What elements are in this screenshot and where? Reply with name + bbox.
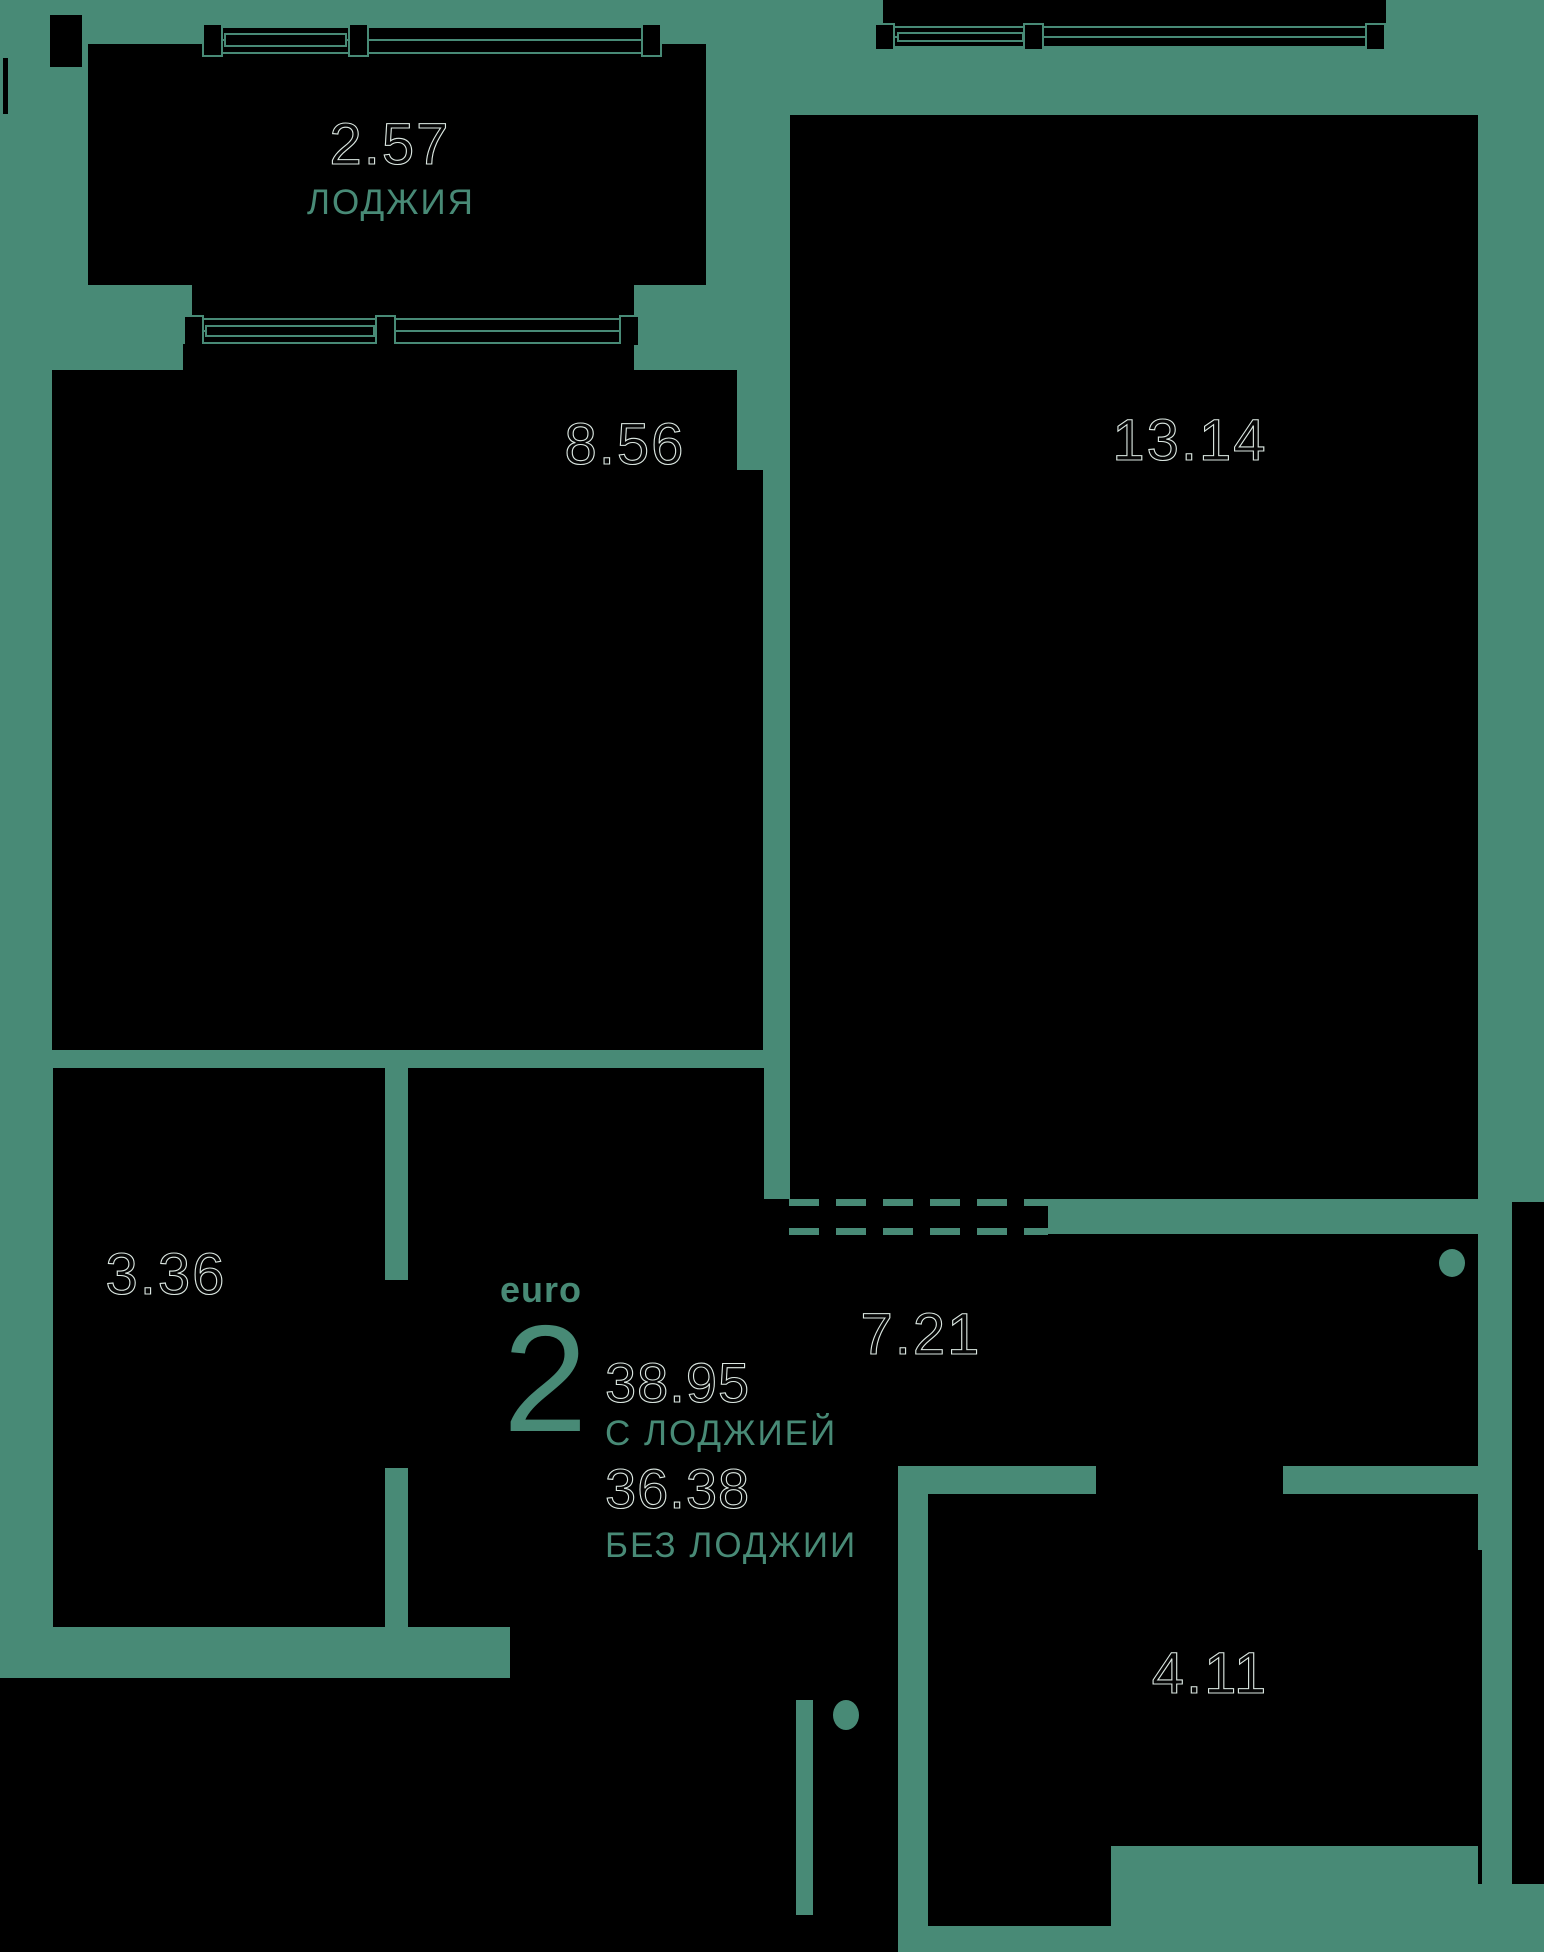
room-kitchen-fill — [183, 344, 634, 370]
wall-mark-line — [3, 58, 8, 114]
window-mullion-icon — [375, 315, 396, 347]
window-casement — [224, 33, 347, 46]
unit-rooms-count: 2 — [503, 1303, 588, 1455]
area-with-loggia-label: С ЛОДЖИЕЙ — [605, 1416, 837, 1451]
area-without-loggia-value: 36.38 — [605, 1461, 750, 1517]
window-mullion-icon — [202, 23, 223, 57]
opening-dashed-line — [789, 1228, 1048, 1235]
entry-zone-fill — [0, 1678, 898, 1952]
window-mullion-icon — [619, 315, 640, 347]
door-leaf-line — [796, 1700, 813, 1915]
area-with-loggia-value: 38.95 — [605, 1355, 750, 1411]
wall-mark-square — [50, 15, 82, 67]
opening-dashed-line — [789, 1199, 1048, 1206]
door-hinge-icon — [833, 1700, 859, 1730]
window-mullion-icon — [183, 315, 204, 347]
room-hallway-area-label: 7.21 — [861, 1306, 982, 1364]
window-mullion-icon — [874, 23, 895, 51]
window-casement — [897, 32, 1024, 42]
window-mullion-icon — [1365, 23, 1386, 51]
room-loggia-fill-lower — [192, 285, 634, 322]
room-bathroom-area-label: 3.36 — [106, 1246, 227, 1304]
room-loggia-area-label: 2.57 — [330, 116, 451, 174]
window-mullion-icon — [348, 23, 369, 57]
window-icon — [202, 26, 662, 54]
room-living-fill — [790, 115, 1478, 1199]
room-bathroom-fill — [53, 1068, 385, 1627]
bathroom-door-opening — [385, 1280, 408, 1468]
right-wall-column — [1512, 1202, 1544, 1884]
window-mullion-icon — [641, 23, 662, 57]
room-kitchen-area-label: 8.56 — [565, 416, 686, 474]
window-icon — [183, 318, 640, 344]
room-loggia-name-label: ЛОДЖИЯ — [307, 185, 475, 220]
window-icon — [874, 26, 1386, 48]
area-without-loggia-label: БЕЗ ЛОДЖИИ — [605, 1528, 857, 1563]
storage-door-opening — [1096, 1466, 1283, 1494]
room-kitchen-fill-ext — [737, 470, 763, 1050]
window-casement — [205, 325, 375, 337]
right-wall-edge-line — [1478, 1550, 1482, 1884]
room-living-top-band — [883, 0, 1386, 28]
summary-zone-fill-lower — [510, 1627, 764, 1680]
partition-wall — [1048, 1199, 1478, 1234]
floor-plan: 2.57 ЛОДЖИЯ 8.56 13.14 3.36 7.21 4.11 eu… — [0, 0, 1544, 1952]
room-storage-area-label: 4.11 — [1152, 1645, 1269, 1703]
window-mullion-icon — [1023, 23, 1044, 51]
door-hinge-icon — [1439, 1249, 1465, 1277]
room-storage-fill-box — [928, 1846, 1111, 1926]
room-living-area-label: 13.14 — [1112, 412, 1267, 470]
